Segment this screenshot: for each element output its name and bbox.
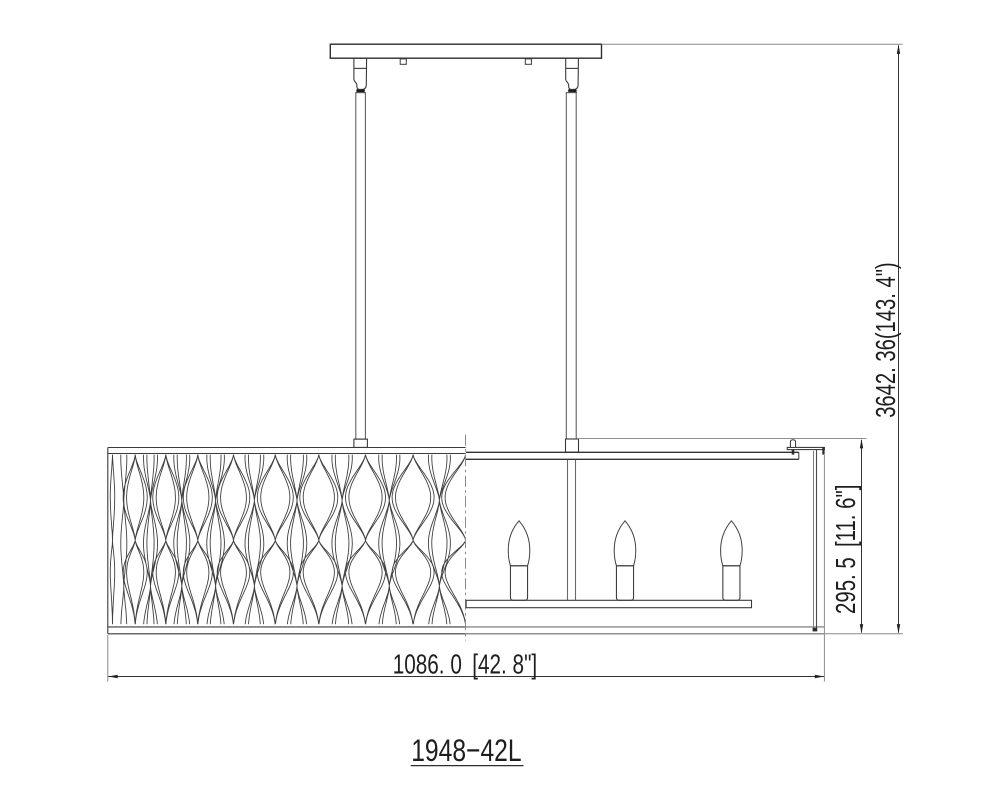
svg-text:1086. 0 [42. 8"]: 1086. 0 [42. 8"]: [393, 648, 538, 679]
svg-text:295. 5 [11. 6"]: 295. 5 [11. 6"]: [830, 485, 861, 614]
svg-text:3642. 36(143. 4"): 3642. 36(143. 4"): [870, 262, 901, 417]
svg-text:1948−42L: 1948−42L: [411, 732, 521, 768]
